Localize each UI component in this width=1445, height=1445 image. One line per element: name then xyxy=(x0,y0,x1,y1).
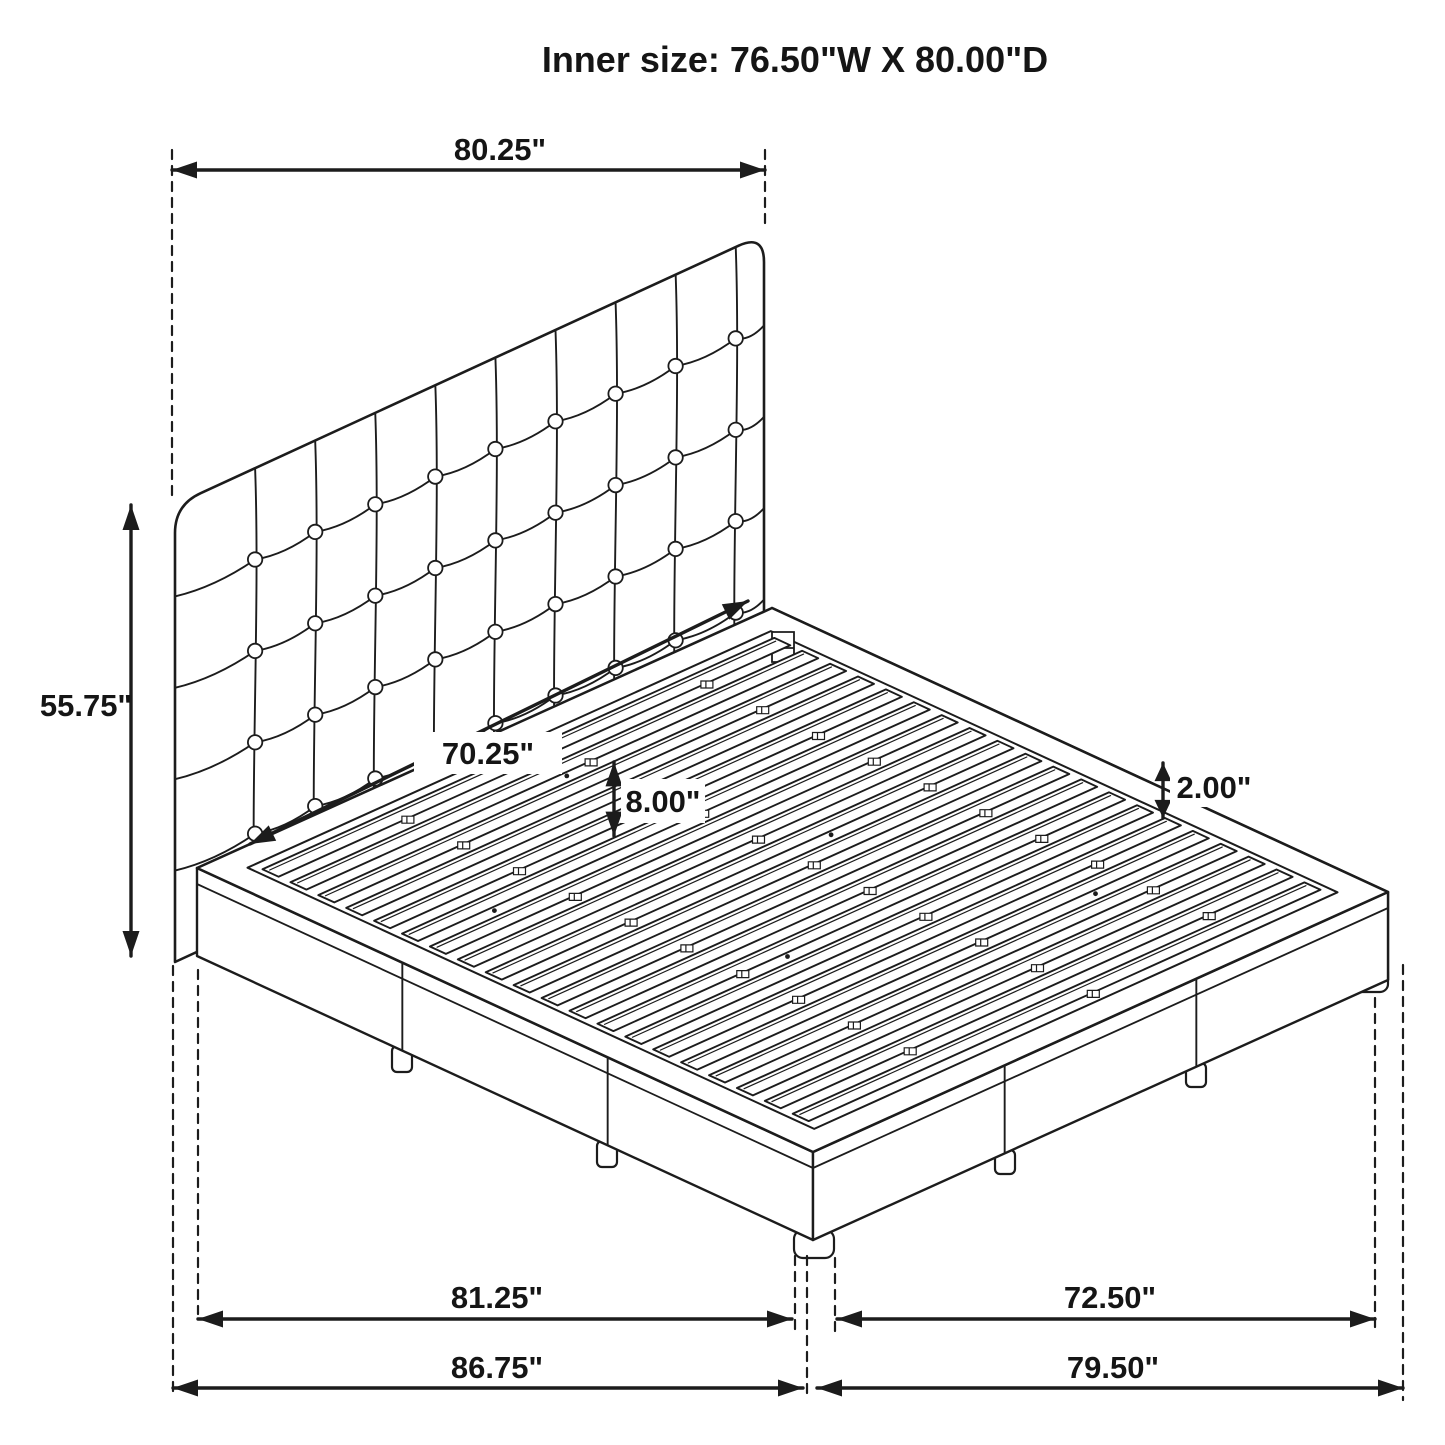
dim-right-rail-length: 72.50" xyxy=(1064,1280,1156,1315)
dim-inner-width: 70.25" xyxy=(442,736,534,771)
dim-overall-depth-left: 86.75" xyxy=(451,1350,543,1385)
bed-dimension-diagram: Inner size: 76.50"W X 80.00"D 80.25" 55.… xyxy=(0,0,1445,1445)
bed-spec-diagram-page: Inner size: 76.50"W X 80.00"D 80.25" 55.… xyxy=(0,0,1445,1445)
dim-base-height: 8.00" xyxy=(625,784,700,819)
dim-left-rail-length: 81.25" xyxy=(451,1280,543,1315)
dim-headboard-width: 80.25" xyxy=(454,132,546,167)
dim-headboard-height: 55.75" xyxy=(40,688,132,723)
dim-slat-thickness: 2.00" xyxy=(1176,770,1251,805)
diagram-title: Inner size: 76.50"W X 80.00"D xyxy=(542,39,1048,80)
dim-overall-depth-right: 79.50" xyxy=(1067,1350,1159,1385)
